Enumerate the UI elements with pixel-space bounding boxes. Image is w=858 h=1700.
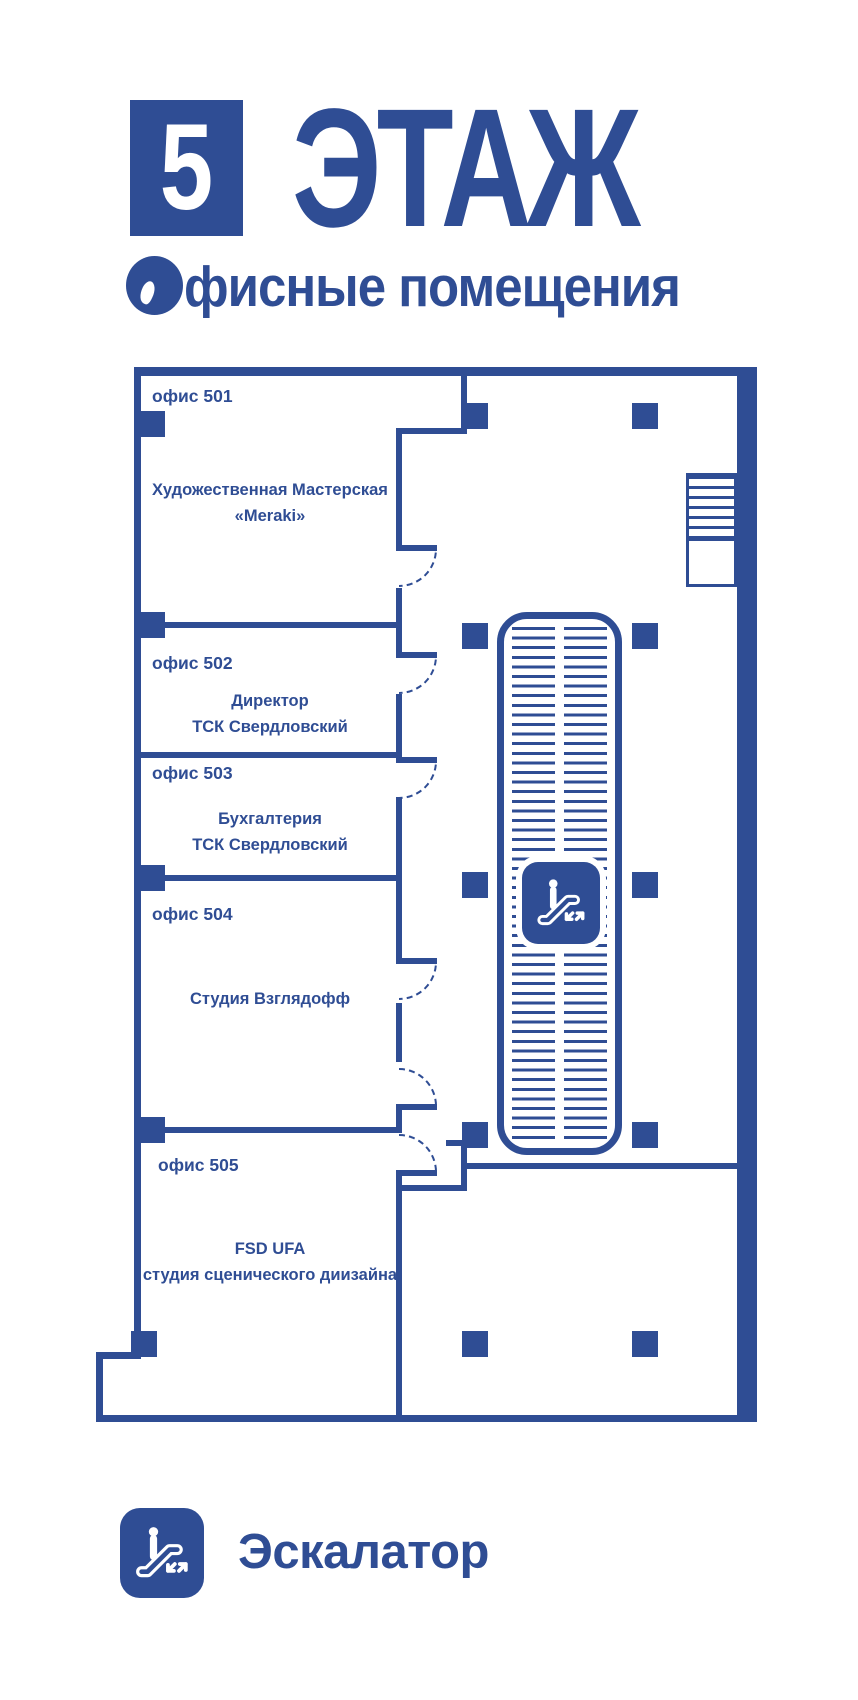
pillar [632, 403, 658, 429]
pillar [462, 1122, 488, 1148]
stairs-treads [689, 476, 734, 541]
room-label-501: офис 501 [152, 386, 233, 407]
room-name-504: Студия Взглядофф [141, 986, 399, 1012]
wall-505-jog [396, 1185, 467, 1191]
wall-corridor-g [396, 1176, 402, 1422]
subtitle-text: фисные помещения [184, 258, 680, 314]
room-name-line: Студия Взглядофф [141, 986, 399, 1012]
wall-right [737, 367, 757, 1422]
room-name-502: Директор ТСК Свердловский [141, 688, 399, 740]
door-arc-504 [399, 962, 437, 1000]
room-name-line: студия сценического диизайна [141, 1262, 399, 1288]
wall-step-left-v [96, 1352, 103, 1422]
wall-o501-jog [396, 428, 467, 434]
page-subtitle: фисные помещения [126, 254, 680, 316]
room-name-line: ТСК Свердловский [141, 832, 399, 858]
legend-label: Эскалатор [238, 1524, 489, 1580]
pillar [134, 1117, 165, 1143]
floor-number: 5 [160, 107, 213, 230]
room-name-line: FSD UFA [141, 1236, 399, 1262]
room-name-501: Художественная Мастерская «Meraki» [141, 477, 399, 529]
wall-top [134, 367, 757, 376]
door-arc-501 [399, 549, 437, 587]
room-name-line: Бухгалтерия [141, 806, 399, 832]
wall-corridor-b [396, 588, 402, 652]
logo-o-icon [126, 256, 183, 315]
pillar [632, 1122, 658, 1148]
door-arc-502 [399, 656, 437, 694]
room-label-504: офис 504 [152, 904, 233, 925]
pillar [462, 1331, 488, 1357]
room-label-503: офис 503 [152, 763, 233, 784]
pillar [462, 403, 488, 429]
room-name-503: Бухгалтерия ТСК Свердловский [141, 806, 399, 858]
room-label-505: офис 505 [158, 1155, 239, 1176]
door-arc-505a [399, 1068, 437, 1106]
pillar [462, 623, 488, 649]
wall-divider-502-503 [141, 752, 402, 758]
floor-number-badge: 5 [130, 100, 243, 236]
escalator-icon [522, 862, 600, 944]
wall-room-bottom-right [461, 1163, 737, 1169]
legend-escalator-icon [120, 1508, 204, 1598]
wall-bottom [96, 1415, 757, 1422]
room-name-line: ТСК Свердловский [141, 714, 399, 740]
pillar [131, 1331, 157, 1357]
stairs [686, 473, 737, 587]
pillar [632, 1331, 658, 1357]
pillar [134, 865, 165, 891]
room-name-line: «Meraki» [141, 503, 399, 529]
room-label-502: офис 502 [152, 653, 233, 674]
pillar [134, 612, 165, 638]
pillar [632, 872, 658, 898]
room-name-505: FSD UFA студия сценического диизайна [141, 1236, 399, 1288]
pillar [632, 623, 658, 649]
pillar [134, 411, 165, 437]
floor-title: ЭТАЖ [292, 84, 636, 253]
pillar [462, 872, 488, 898]
wall-divider-501-502 [141, 622, 402, 628]
door-arc-503 [399, 761, 437, 799]
floor-sign-page: 5 ЭТАЖ фисные помещения [0, 0, 858, 1700]
wall-divider-504-505 [141, 1127, 402, 1133]
room-name-line: Художественная Мастерская [141, 477, 399, 503]
room-name-line: Директор [141, 688, 399, 714]
wall-left [134, 367, 141, 1358]
wall-divider-503-504 [141, 875, 402, 881]
door-arc-505b [399, 1134, 437, 1172]
